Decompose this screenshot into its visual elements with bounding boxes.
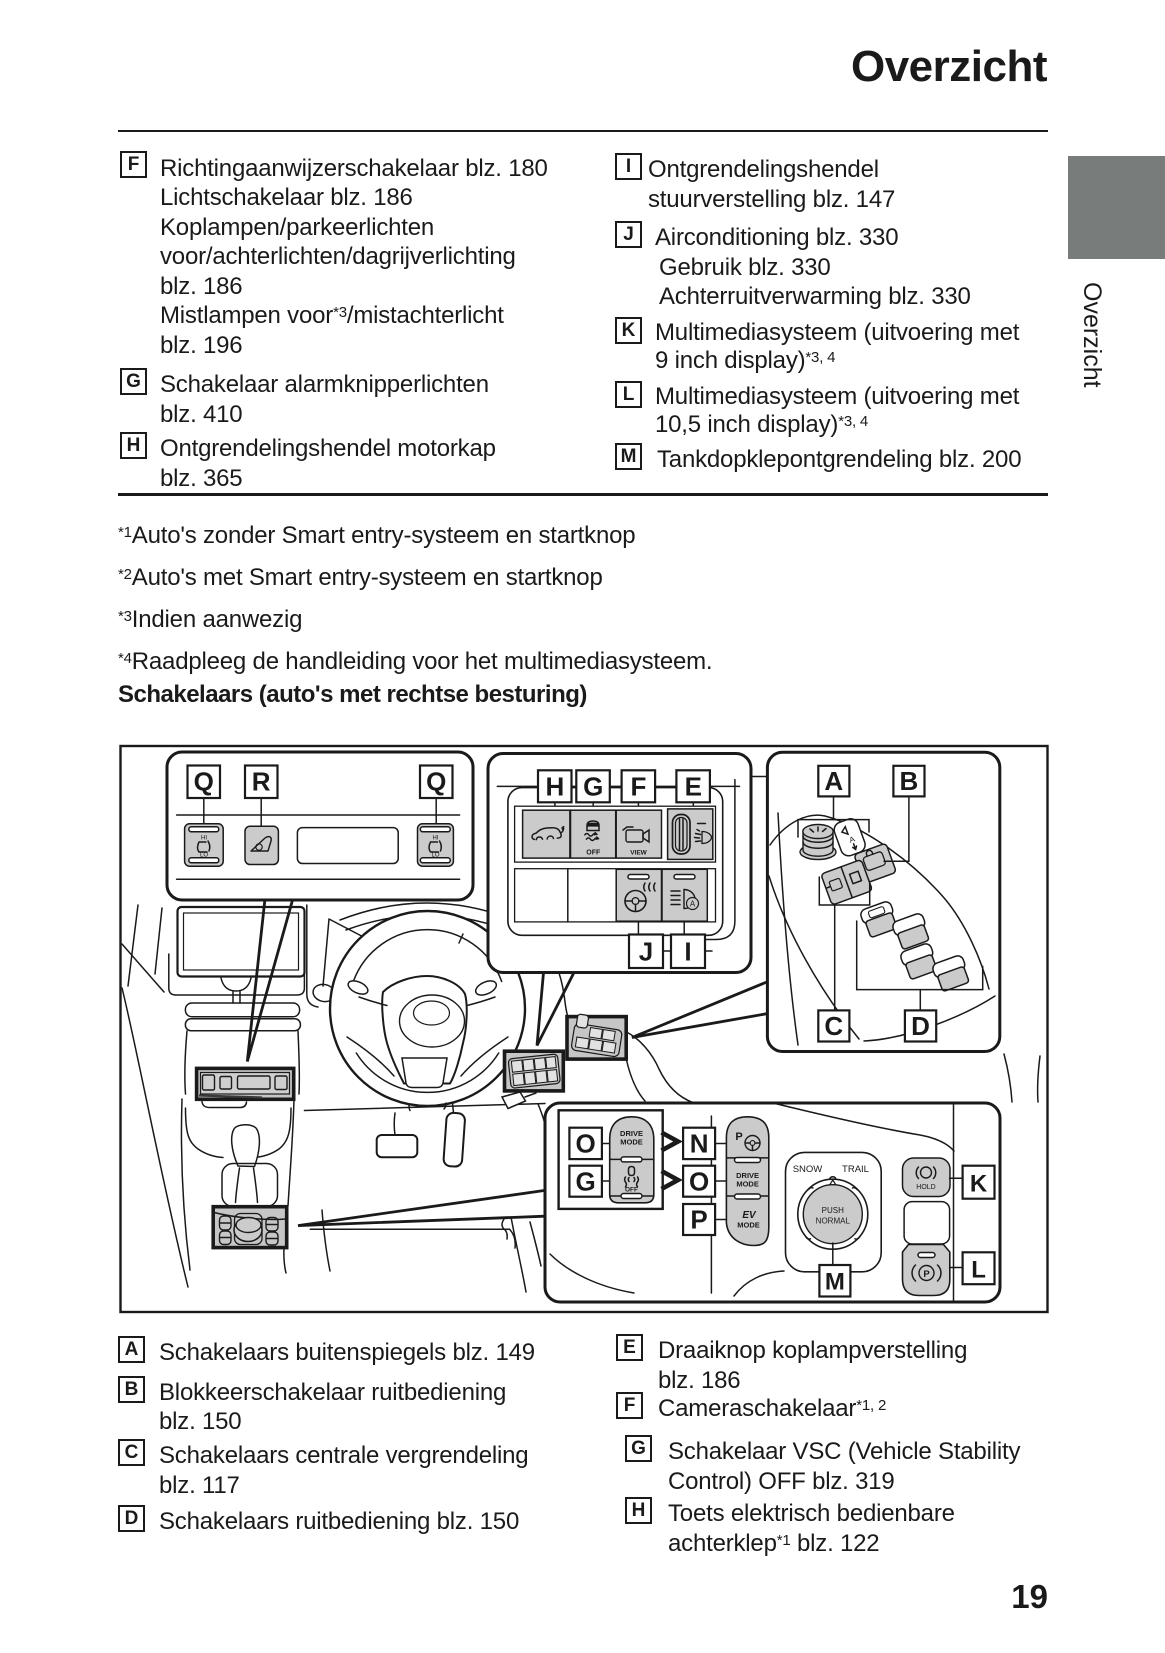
- svg-text:P: P: [923, 1269, 930, 1280]
- svg-text:P: P: [735, 1131, 742, 1143]
- svg-text:A: A: [824, 766, 843, 796]
- svg-text:PUSH: PUSH: [822, 1206, 844, 1215]
- svg-text:VIEW: VIEW: [630, 850, 647, 857]
- svg-text:A: A: [690, 900, 696, 909]
- svg-text:C: C: [824, 1011, 843, 1041]
- svg-text:N: N: [690, 1129, 709, 1159]
- svg-text:B: B: [900, 766, 919, 796]
- svg-text:SNOW: SNOW: [793, 1164, 823, 1175]
- svg-text:HI: HI: [201, 836, 207, 842]
- svg-text:NORMAL: NORMAL: [816, 1217, 851, 1226]
- svg-text:H: H: [546, 772, 565, 802]
- svg-text:P: P: [690, 1205, 707, 1235]
- svg-text:M: M: [825, 1269, 845, 1296]
- svg-text:R: R: [252, 767, 271, 797]
- svg-text:I: I: [684, 937, 691, 967]
- svg-text:G: G: [583, 772, 603, 802]
- svg-text:O: O: [575, 1129, 595, 1159]
- svg-text:Q: Q: [426, 767, 446, 797]
- svg-text:O: O: [689, 1167, 709, 1197]
- svg-text:OFF: OFF: [625, 1187, 638, 1194]
- svg-text:K: K: [970, 1171, 988, 1198]
- svg-text:EV: EV: [742, 1210, 757, 1221]
- svg-text:Q: Q: [194, 767, 214, 797]
- svg-text:MODE: MODE: [736, 1180, 759, 1189]
- svg-text:MODE: MODE: [620, 1138, 643, 1147]
- svg-text:J: J: [639, 937, 653, 967]
- svg-text:E: E: [685, 772, 702, 802]
- svg-text:G: G: [575, 1167, 595, 1197]
- svg-text:F: F: [630, 772, 646, 802]
- svg-text:OFF: OFF: [586, 850, 601, 857]
- svg-text:HI: HI: [433, 836, 439, 842]
- svg-text:L: L: [971, 1257, 986, 1284]
- svg-text:D: D: [911, 1011, 930, 1041]
- svg-text:TRAIL: TRAIL: [842, 1164, 869, 1175]
- svg-text:HOLD: HOLD: [916, 1184, 935, 1191]
- svg-text:MODE: MODE: [737, 1221, 760, 1230]
